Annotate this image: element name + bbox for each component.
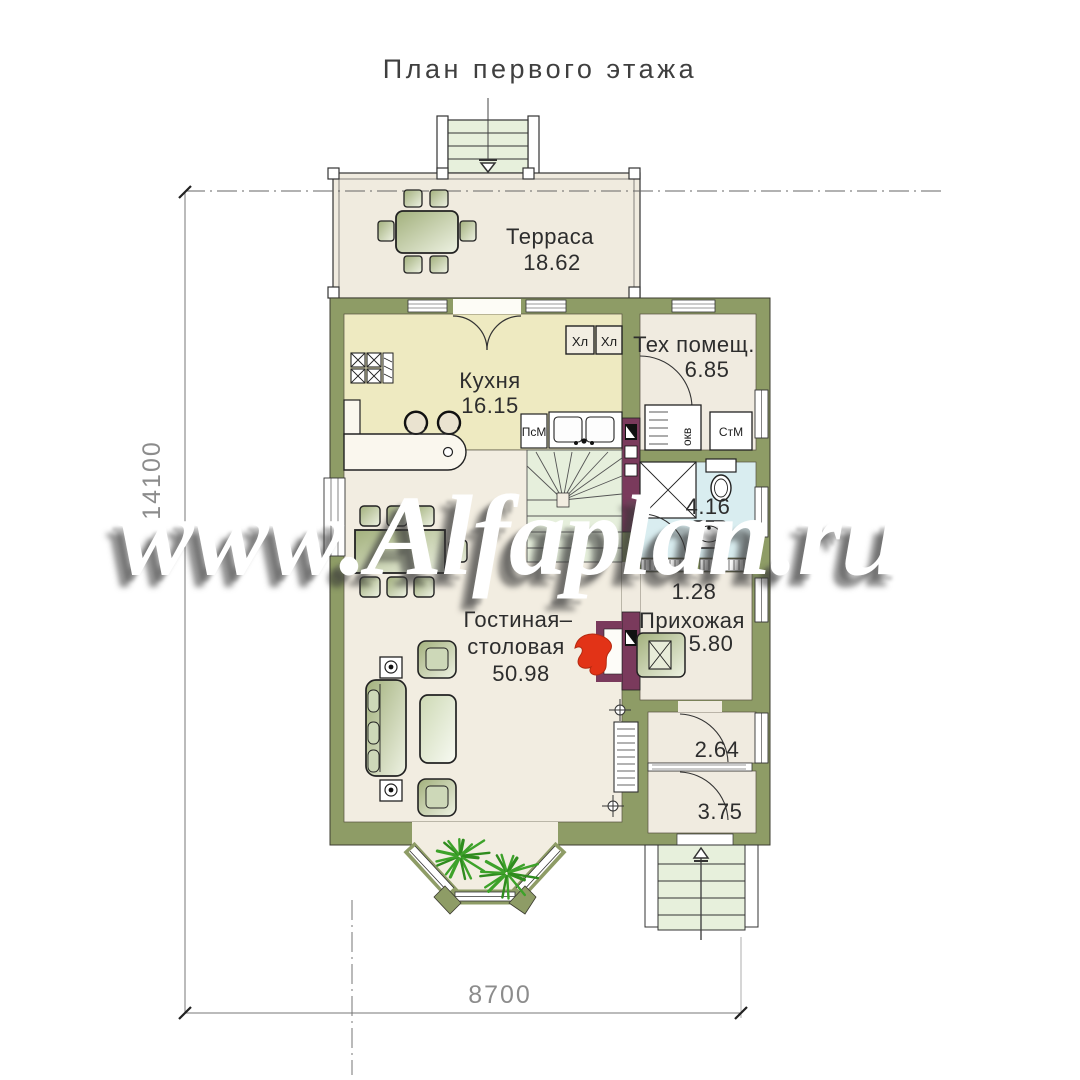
fridge-2-label: Хл bbox=[601, 334, 617, 349]
hallway-label: Прихожая bbox=[639, 608, 745, 633]
vestibule-area: 2.64 bbox=[695, 737, 740, 762]
tech-area: 6.85 bbox=[685, 357, 730, 382]
staircase bbox=[527, 450, 622, 562]
tech-label: Тех помещ. bbox=[633, 332, 755, 357]
kitchen-window-left bbox=[408, 300, 447, 312]
passage-opening bbox=[622, 562, 640, 612]
hallway-area: 5.80 bbox=[689, 631, 734, 656]
glazed-partition bbox=[648, 763, 752, 771]
bay-window bbox=[409, 822, 561, 914]
dining-table bbox=[355, 530, 445, 573]
terrace-door-opening bbox=[453, 299, 521, 314]
living-label-1: Гостиная– bbox=[463, 607, 572, 632]
fridge-1-label: Хл bbox=[572, 334, 588, 349]
vestibule-door-opening bbox=[678, 701, 722, 712]
living-label-2: столовая bbox=[467, 634, 565, 659]
kitchen-area: 16.15 bbox=[461, 393, 519, 418]
kitchen-label: Кухня bbox=[459, 368, 520, 393]
floor-plan-canvas: План первого этажа bbox=[0, 0, 1080, 1080]
entry-area: 3.75 bbox=[698, 799, 743, 824]
dishwasher-label: ПсМ bbox=[522, 425, 547, 439]
terrace-label: Терраса bbox=[506, 224, 594, 249]
bathroom-area: 4.16 bbox=[686, 494, 731, 519]
tech-window bbox=[672, 300, 715, 312]
radiator-hatch bbox=[641, 559, 748, 571]
floor-plan-drawing: Хл Хл ПсМ окв СтМ bbox=[0, 0, 1080, 1080]
dishwasher-and-sink: ПсМ bbox=[521, 412, 622, 448]
living-window-left bbox=[324, 478, 345, 556]
coffee-table bbox=[420, 695, 456, 763]
washing-machine-label: СтМ bbox=[719, 425, 743, 439]
washbasin-icon bbox=[691, 521, 727, 548]
living-radiator bbox=[614, 722, 638, 792]
terrace-table bbox=[396, 211, 458, 253]
terrace-area: 18.62 bbox=[523, 250, 581, 275]
kitchen-window-right bbox=[526, 300, 566, 312]
living-area: 50.98 bbox=[492, 661, 550, 686]
dimension-width: 8700 bbox=[468, 981, 532, 1009]
entrance-door-opening bbox=[677, 834, 733, 846]
dimension-height: 14100 bbox=[138, 440, 166, 520]
fridges: Хл Хл bbox=[566, 326, 622, 354]
corridor-area: 1.28 bbox=[672, 579, 717, 604]
hallway-wardrobe bbox=[637, 633, 685, 677]
boiler-label: окв bbox=[680, 428, 694, 446]
vent-shaft bbox=[622, 418, 640, 532]
